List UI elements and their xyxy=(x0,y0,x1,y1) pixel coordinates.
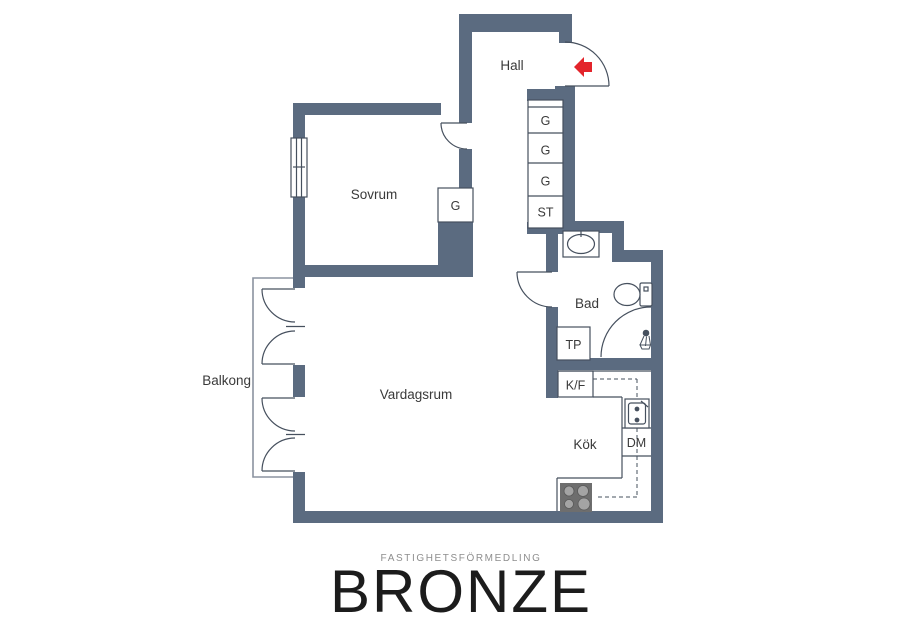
floorplan-page: Hall Sovrum Vardagsrum Balkong Bad Kök G… xyxy=(0,0,905,640)
room-label-kok: Kök xyxy=(573,437,597,452)
room-label-sovrum: Sovrum xyxy=(351,187,398,202)
bath-sink-icon xyxy=(563,231,599,257)
closet-label-st: ST xyxy=(538,206,554,220)
room-label-balkong: Balkong xyxy=(202,373,251,388)
balcony-door-arc-lower xyxy=(262,398,305,471)
room-label-vardagsrum: Vardagsrum xyxy=(380,387,453,402)
window-icon xyxy=(291,138,307,197)
agency-logo: BRONZE xyxy=(330,562,592,622)
shower-head-icon xyxy=(640,330,651,349)
closet-label-g-sovrum: G xyxy=(451,199,461,213)
walls xyxy=(293,14,663,523)
room-label-bad: Bad xyxy=(575,296,599,311)
toilet-icon xyxy=(614,283,652,306)
bathroom-door-arc xyxy=(517,272,552,307)
room-label-hall: Hall xyxy=(500,58,523,73)
label-kf: K/F xyxy=(566,379,586,393)
label-tp: TP xyxy=(566,338,582,352)
closet-label-g3: G xyxy=(541,175,551,189)
kitchen-sink-icon xyxy=(625,399,649,428)
balcony-door-arc-upper xyxy=(262,289,305,364)
floorplan-drawing: Hall Sovrum Vardagsrum Balkong Bad Kök G… xyxy=(0,0,905,640)
closet-label-g2: G xyxy=(541,144,551,158)
closet-label-g1: G xyxy=(541,114,551,128)
bedroom-door-arc xyxy=(441,123,467,149)
stove-icon xyxy=(560,483,592,512)
label-dm: DM xyxy=(627,436,646,450)
entrance-arrow-icon xyxy=(574,57,592,77)
